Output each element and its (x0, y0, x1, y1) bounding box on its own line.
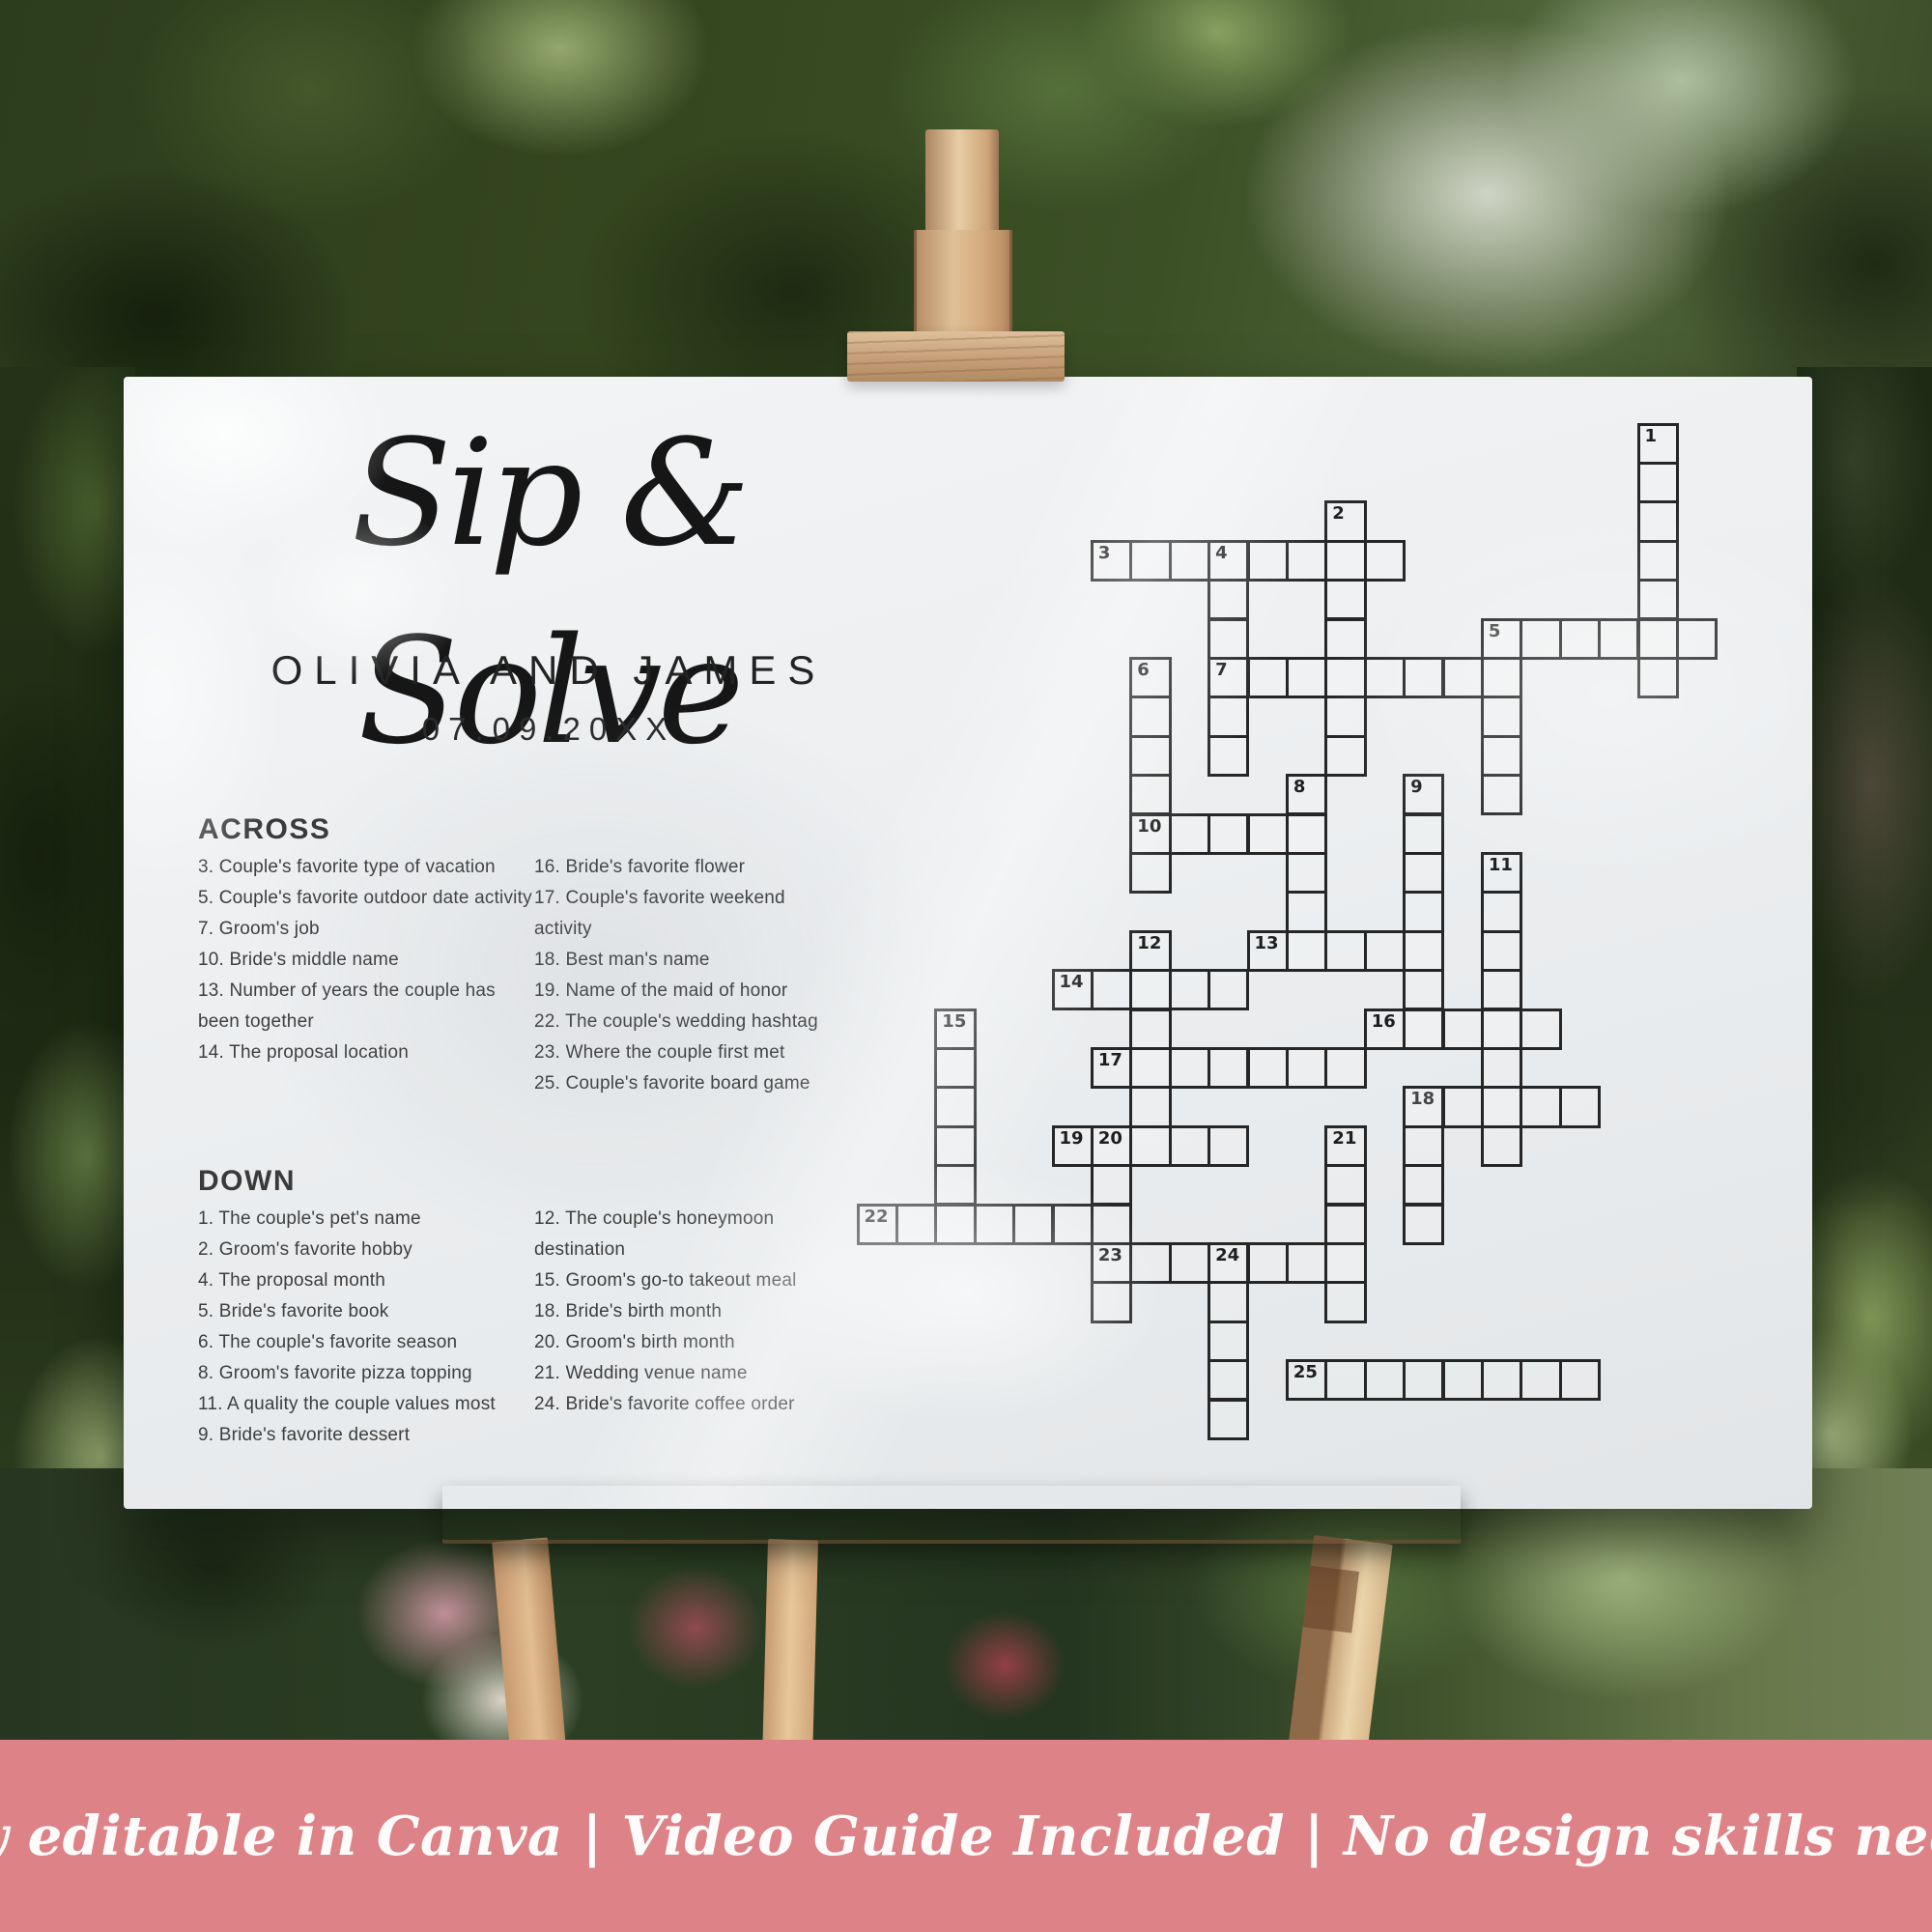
crossword-cell (1324, 696, 1366, 737)
crossword-cell (1286, 813, 1327, 855)
crossword-cell (1207, 1321, 1249, 1362)
crossword-cell (1637, 500, 1679, 542)
clue-item: 12. The couple's honeymoon destination (534, 1204, 843, 1265)
crossword-cell (1169, 540, 1210, 582)
crossword-cell (1247, 1242, 1289, 1284)
crossword-cell (1481, 657, 1522, 698)
crossword-cell: 9 (1403, 774, 1444, 815)
crossword-cell (1207, 1359, 1249, 1401)
crossword-cell: 12 (1129, 930, 1171, 972)
crossword-cell (1637, 462, 1679, 503)
crossword-number: 20 (1098, 1130, 1122, 1148)
crossword-cell (1324, 1047, 1366, 1089)
crossword-cell (1129, 735, 1171, 777)
crossword-cell (1403, 969, 1444, 1010)
clue-item: 8. Groom's favorite pizza topping (198, 1358, 538, 1389)
crossword-cell: 13 (1247, 930, 1289, 972)
crossword-cell (1207, 579, 1249, 620)
crossword-cell (1247, 657, 1289, 698)
crossword-cell (934, 1047, 976, 1089)
crossword-cell (934, 1204, 976, 1245)
across-clues-col1: 3. Couple's favorite type of vacation5. … (198, 852, 538, 1068)
crossword-cell (1129, 540, 1171, 582)
easel-clamp-post (925, 129, 999, 236)
promo-banner: Fully editable in Canva | Video Guide In… (0, 1740, 1932, 1932)
crossword-cell (1129, 969, 1171, 1010)
clue-item: 23. Where the couple first met (534, 1037, 843, 1068)
crossword-cell (1637, 540, 1679, 582)
crossword-cell (1207, 813, 1249, 855)
crossword-cell (1286, 1047, 1327, 1089)
crossword-number: 24 (1215, 1247, 1239, 1264)
crossword-number: 10 (1137, 818, 1161, 836)
crossword-number: 2 (1332, 505, 1345, 523)
crossword-cell (1481, 930, 1522, 972)
crossword-grid: 1234567891011121314151617181920212223242… (858, 424, 1766, 1448)
crossword-cell (1481, 1359, 1522, 1401)
crossword-cell (1481, 891, 1522, 932)
clue-item: 1. The couple's pet's name (198, 1204, 538, 1235)
crossword-cell (1091, 1281, 1132, 1322)
crossword-cell (1520, 1086, 1561, 1127)
crossword-cell (1637, 618, 1679, 660)
crossword-cell (1559, 1086, 1601, 1127)
crossword-cell: 6 (1129, 657, 1171, 698)
clue-item: 5. Couple's favorite outdoor date activi… (198, 883, 538, 914)
crossword-cell: 19 (1052, 1125, 1094, 1167)
crossword-cell: 10 (1129, 813, 1171, 855)
crossword-cell (1169, 813, 1210, 855)
crossword-number: 8 (1293, 779, 1306, 796)
crossword-cell (1324, 1242, 1366, 1284)
crossword-cell (934, 1164, 976, 1206)
crossword-cell (1324, 540, 1366, 582)
crossword-cell (1207, 1281, 1249, 1322)
clue-item: 19. Name of the maid of honor (534, 976, 843, 1007)
clue-item: 25. Couple's favorite board game (534, 1068, 843, 1099)
crossword-cell (1129, 1242, 1171, 1284)
clue-item: 9. Bride's favorite dessert (198, 1420, 538, 1451)
crossword-cell: 20 (1091, 1125, 1132, 1167)
crossword-cell (1481, 735, 1522, 777)
crossword-number: 4 (1215, 545, 1228, 562)
clue-item: 7. Groom's job (198, 914, 538, 945)
easel-leg-center (762, 1539, 818, 1747)
crossword-cell (1481, 696, 1522, 737)
crossword-cell: 3 (1091, 540, 1132, 582)
crossword-cell (1442, 1086, 1484, 1127)
crossword-number: 7 (1215, 662, 1228, 679)
crossword-cell (1559, 618, 1601, 660)
crossword-cell (1403, 813, 1444, 855)
crossword-number: 22 (865, 1208, 889, 1226)
crossword-cell (1247, 813, 1289, 855)
crossword-cell (1481, 774, 1522, 815)
crossword-cell (1324, 618, 1366, 660)
crossword-number: 13 (1255, 935, 1279, 952)
crossword-number: 25 (1293, 1364, 1318, 1381)
crossword-cell (1324, 1281, 1366, 1322)
crossword-cell (1481, 1047, 1522, 1089)
crossword-cell (1364, 540, 1406, 582)
clue-item: 15. Groom's go-to takeout meal (534, 1265, 843, 1296)
clue-item: 6. The couple's favorite season (198, 1327, 538, 1358)
crossword-cell (1286, 891, 1327, 932)
crossword-cell (1129, 1047, 1171, 1089)
crossword-cell (1324, 657, 1366, 698)
crossword-number: 1 (1645, 428, 1658, 445)
crossword-cell (1481, 1009, 1522, 1050)
crossword-cell (1403, 1125, 1444, 1167)
crossword-cell (1129, 852, 1171, 894)
crossword-cell (974, 1204, 1015, 1245)
crossword-cell (1012, 1204, 1054, 1245)
crossword-number: 19 (1060, 1130, 1084, 1148)
crossword-cell (1559, 1359, 1601, 1401)
crossword-cell: 14 (1052, 969, 1094, 1010)
wedding-date: 07.09.20XX (162, 711, 935, 748)
crossword-cell (1403, 930, 1444, 972)
crossword-cell (1324, 579, 1366, 620)
crossword-cell (1481, 969, 1522, 1010)
crossword-cell (1207, 618, 1249, 660)
crossword-cell (1169, 1047, 1210, 1089)
crossword-cell (1442, 1009, 1484, 1050)
crossword-cell: 23 (1091, 1242, 1132, 1284)
crossword-cell (1091, 1204, 1132, 1245)
crossword-cell (1169, 969, 1210, 1010)
clue-item: 2. Groom's favorite hobby (198, 1235, 538, 1265)
crossword-cell: 22 (857, 1204, 898, 1245)
clue-item: 10. Bride's middle name (198, 945, 538, 976)
crossword-cell (1129, 1125, 1171, 1167)
crossword-cell (1129, 1009, 1171, 1050)
crossword-cell (1520, 618, 1561, 660)
promo-banner-text: Fully editable in Canva | Video Guide In… (0, 1804, 1932, 1868)
crossword-cell (1442, 1359, 1484, 1401)
crossword-number: 23 (1098, 1247, 1122, 1264)
crossword-cell (1286, 540, 1327, 582)
crossword-cell (1286, 657, 1327, 698)
crossword-cell: 8 (1286, 774, 1327, 815)
crossword-cell (934, 1086, 976, 1127)
crossword-cell (1520, 1009, 1561, 1050)
clue-item: 18. Bride's birth month (534, 1296, 843, 1327)
crossword-cell: 25 (1286, 1359, 1327, 1401)
clue-item: 5. Bride's favorite book (198, 1296, 538, 1327)
crossword-cell (1324, 930, 1366, 972)
crossword-number: 16 (1372, 1013, 1396, 1031)
clue-item: 18. Best man's name (534, 945, 843, 976)
easel-clamp-bar (847, 331, 1065, 382)
crossword-cell (1403, 852, 1444, 894)
crossword-cell (1481, 1086, 1522, 1127)
easel-clamp-mid (914, 230, 1012, 334)
crossword-cell (1091, 969, 1132, 1010)
crossword-cell (1286, 930, 1327, 972)
crossword-cell (1676, 618, 1718, 660)
crossword-number: 3 (1098, 545, 1111, 562)
crossword-cell (934, 1125, 976, 1167)
clue-item: 24. Bride's favorite coffee order (534, 1389, 843, 1420)
crossword-cell: 15 (934, 1009, 976, 1050)
crossword-number: 21 (1332, 1130, 1356, 1148)
crossword-cell (1364, 930, 1406, 972)
crossword-cell (1207, 1125, 1249, 1167)
clue-item: 21. Wedding venue name (534, 1358, 843, 1389)
crossword-cell (1403, 1009, 1444, 1050)
crossword-cell (1324, 1359, 1366, 1401)
couple-names: OLIVIA AND JAMES (162, 647, 935, 694)
crossword-number: 11 (1489, 857, 1513, 874)
crossword-cell (1207, 1047, 1249, 1089)
crossword-cell (1169, 1242, 1210, 1284)
crossword-cell (1442, 657, 1484, 698)
crossword-number: 17 (1098, 1052, 1122, 1069)
crossword-cell: 16 (1364, 1009, 1406, 1050)
clue-item: 11. A quality the couple values most (198, 1389, 538, 1420)
crossword-cell: 17 (1091, 1047, 1132, 1089)
garden-background-left (0, 367, 135, 1526)
crossword-number: 9 (1410, 779, 1423, 796)
crossword-cell (1207, 735, 1249, 777)
crossword-cell (1637, 657, 1679, 698)
poster: Sip & Solve OLIVIA AND JAMES 07.09.20XX … (124, 377, 1812, 1509)
crossword-cell (1598, 618, 1639, 660)
crossword-cell (1207, 1399, 1249, 1440)
clue-item: 3. Couple's favorite type of vacation (198, 852, 538, 883)
crossword-cell: 24 (1207, 1242, 1249, 1284)
crossword-cell (1403, 1086, 1444, 1127)
crossword-cell (1207, 696, 1249, 737)
crossword-cell (1403, 1204, 1444, 1245)
crossword-cell (1364, 657, 1406, 698)
crossword-cell (1129, 1086, 1171, 1127)
crossword-cell (1247, 540, 1289, 582)
crossword-number: 12 (1137, 935, 1161, 952)
clue-item: 20. Groom's birth month (534, 1327, 843, 1358)
crossword-cell (1364, 1359, 1406, 1401)
clue-item: 17. Couple's favorite weekend activity (534, 883, 843, 945)
garden-background-right (1797, 367, 1932, 1526)
crossword-cell (1169, 1125, 1210, 1167)
crossword-cell (1052, 1204, 1094, 1245)
crossword-cell: 2 (1324, 500, 1366, 542)
across-clues-col2: 16. Bride's favorite flower17. Couple's … (534, 852, 843, 1099)
crossword-cell: 4 (1207, 540, 1249, 582)
crossword-cell (1324, 1164, 1366, 1206)
crossword-cell (1520, 1359, 1561, 1401)
crossword-cell (1637, 579, 1679, 620)
crossword-number: 6 (1137, 662, 1150, 679)
crossword-cell: 21 (1324, 1125, 1366, 1167)
easel-tray (442, 1486, 1461, 1544)
crossword-cell: 7 (1207, 657, 1249, 698)
crossword-cell (1324, 735, 1366, 777)
crossword-cell (1324, 1204, 1366, 1245)
crossword-cell: 11 (1481, 852, 1522, 894)
across-header: ACROSS (198, 813, 330, 846)
clue-item: 14. The proposal location (198, 1037, 538, 1068)
crossword-number: 14 (1060, 974, 1084, 991)
crossword-cell (1403, 1164, 1444, 1206)
down-header: DOWN (198, 1165, 296, 1198)
crossword-cell (1129, 696, 1171, 737)
crossword-cell (1403, 1359, 1444, 1401)
crossword-cell (1129, 774, 1171, 815)
clue-item: 13. Number of years the couple has been … (198, 976, 538, 1037)
crossword-number: 15 (942, 1013, 966, 1031)
crossword-cell (1091, 1164, 1132, 1206)
crossword-cell (1207, 969, 1249, 1010)
down-clues-col1: 1. The couple's pet's name2. Groom's fav… (198, 1204, 538, 1451)
crossword-cell (1403, 891, 1444, 932)
crossword-cell: 1 (1637, 423, 1679, 465)
crossword-cell (1247, 1047, 1289, 1089)
crossword-cell (1286, 852, 1327, 894)
clue-item: 16. Bride's favorite flower (534, 852, 843, 883)
crossword-cell (1481, 618, 1522, 660)
crossword-cell (1286, 1242, 1327, 1284)
clue-item: 22. The couple's wedding hashtag (534, 1007, 843, 1037)
crossword-cell (895, 1204, 937, 1245)
easel-leg-knot (1303, 1566, 1359, 1634)
down-clues-col2: 12. The couple's honeymoon destination15… (534, 1204, 843, 1420)
clue-item: 4. The proposal month (198, 1265, 538, 1296)
crossword-cell (1403, 657, 1444, 698)
crossword-cell (1481, 1125, 1522, 1167)
